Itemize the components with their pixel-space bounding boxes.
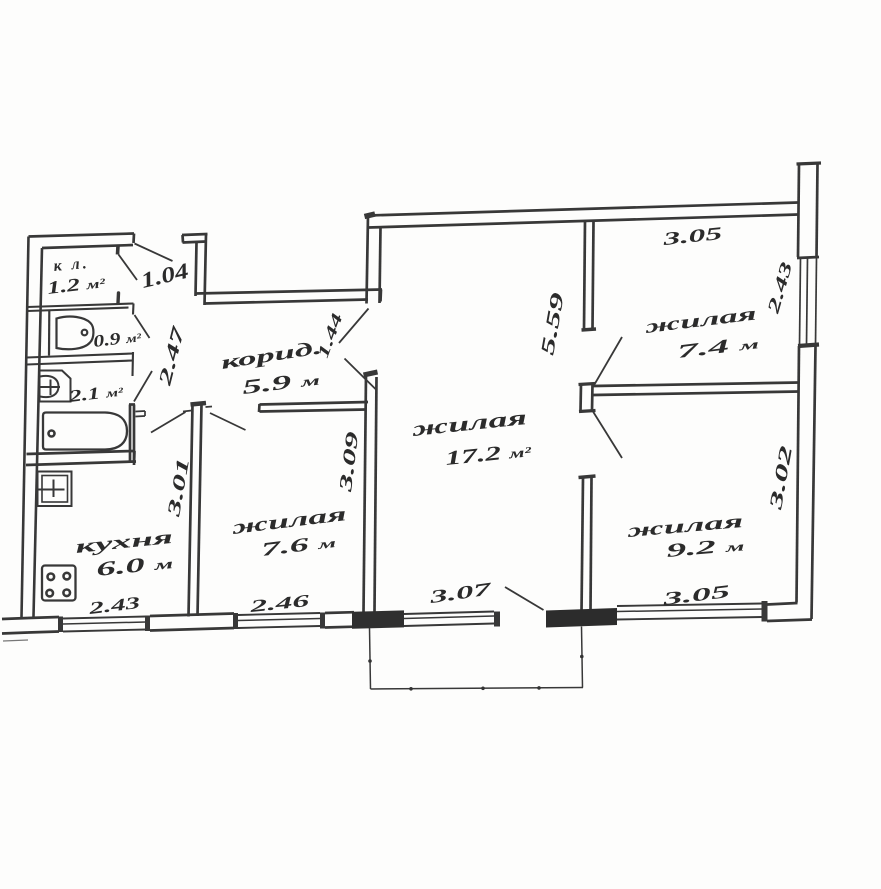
svg-text:1.2 м²: 1.2 м²: [46, 271, 108, 298]
svg-text:2.43: 2.43: [86, 593, 141, 618]
svg-text:жилая: жилая: [642, 303, 758, 338]
svg-text:1.04: 1.04: [139, 258, 191, 293]
svg-text:3.07: 3.07: [427, 578, 494, 607]
svg-text:жилая: жилая: [229, 503, 348, 539]
svg-text:2.1 м²: 2.1 м²: [67, 380, 125, 406]
svg-text:к л.: к л.: [53, 255, 90, 275]
svg-text:7.6 м: 7.6 м: [260, 531, 337, 561]
svg-text:0.9 м²: 0.9 м²: [92, 326, 142, 351]
svg-text:7.4 м: 7.4 м: [676, 332, 760, 363]
svg-text:1.44: 1.44: [315, 311, 347, 360]
svg-text:жилая: жилая: [625, 511, 745, 542]
svg-text:9.2 м: 9.2 м: [666, 534, 746, 562]
svg-text:2.47: 2.47: [154, 323, 189, 389]
svg-text:5.9 м: 5.9 м: [241, 368, 322, 399]
svg-text:кухня: кухня: [74, 527, 174, 558]
svg-text:3.09: 3.09: [335, 430, 362, 494]
svg-text:3.01: 3.01: [163, 456, 193, 519]
svg-text:3.02: 3.02: [765, 444, 796, 513]
svg-text:5.59: 5.59: [537, 290, 569, 357]
svg-text:2.43: 2.43: [763, 259, 796, 317]
svg-text:17.2 м²: 17.2 м²: [444, 439, 533, 470]
svg-text:жилая: жилая: [409, 405, 528, 441]
svg-text:6.0 м: 6.0 м: [95, 551, 175, 581]
svg-text:3.05: 3.05: [660, 223, 723, 249]
svg-text:2.46: 2.46: [247, 591, 311, 616]
svg-text:корид.: корид.: [219, 337, 323, 374]
